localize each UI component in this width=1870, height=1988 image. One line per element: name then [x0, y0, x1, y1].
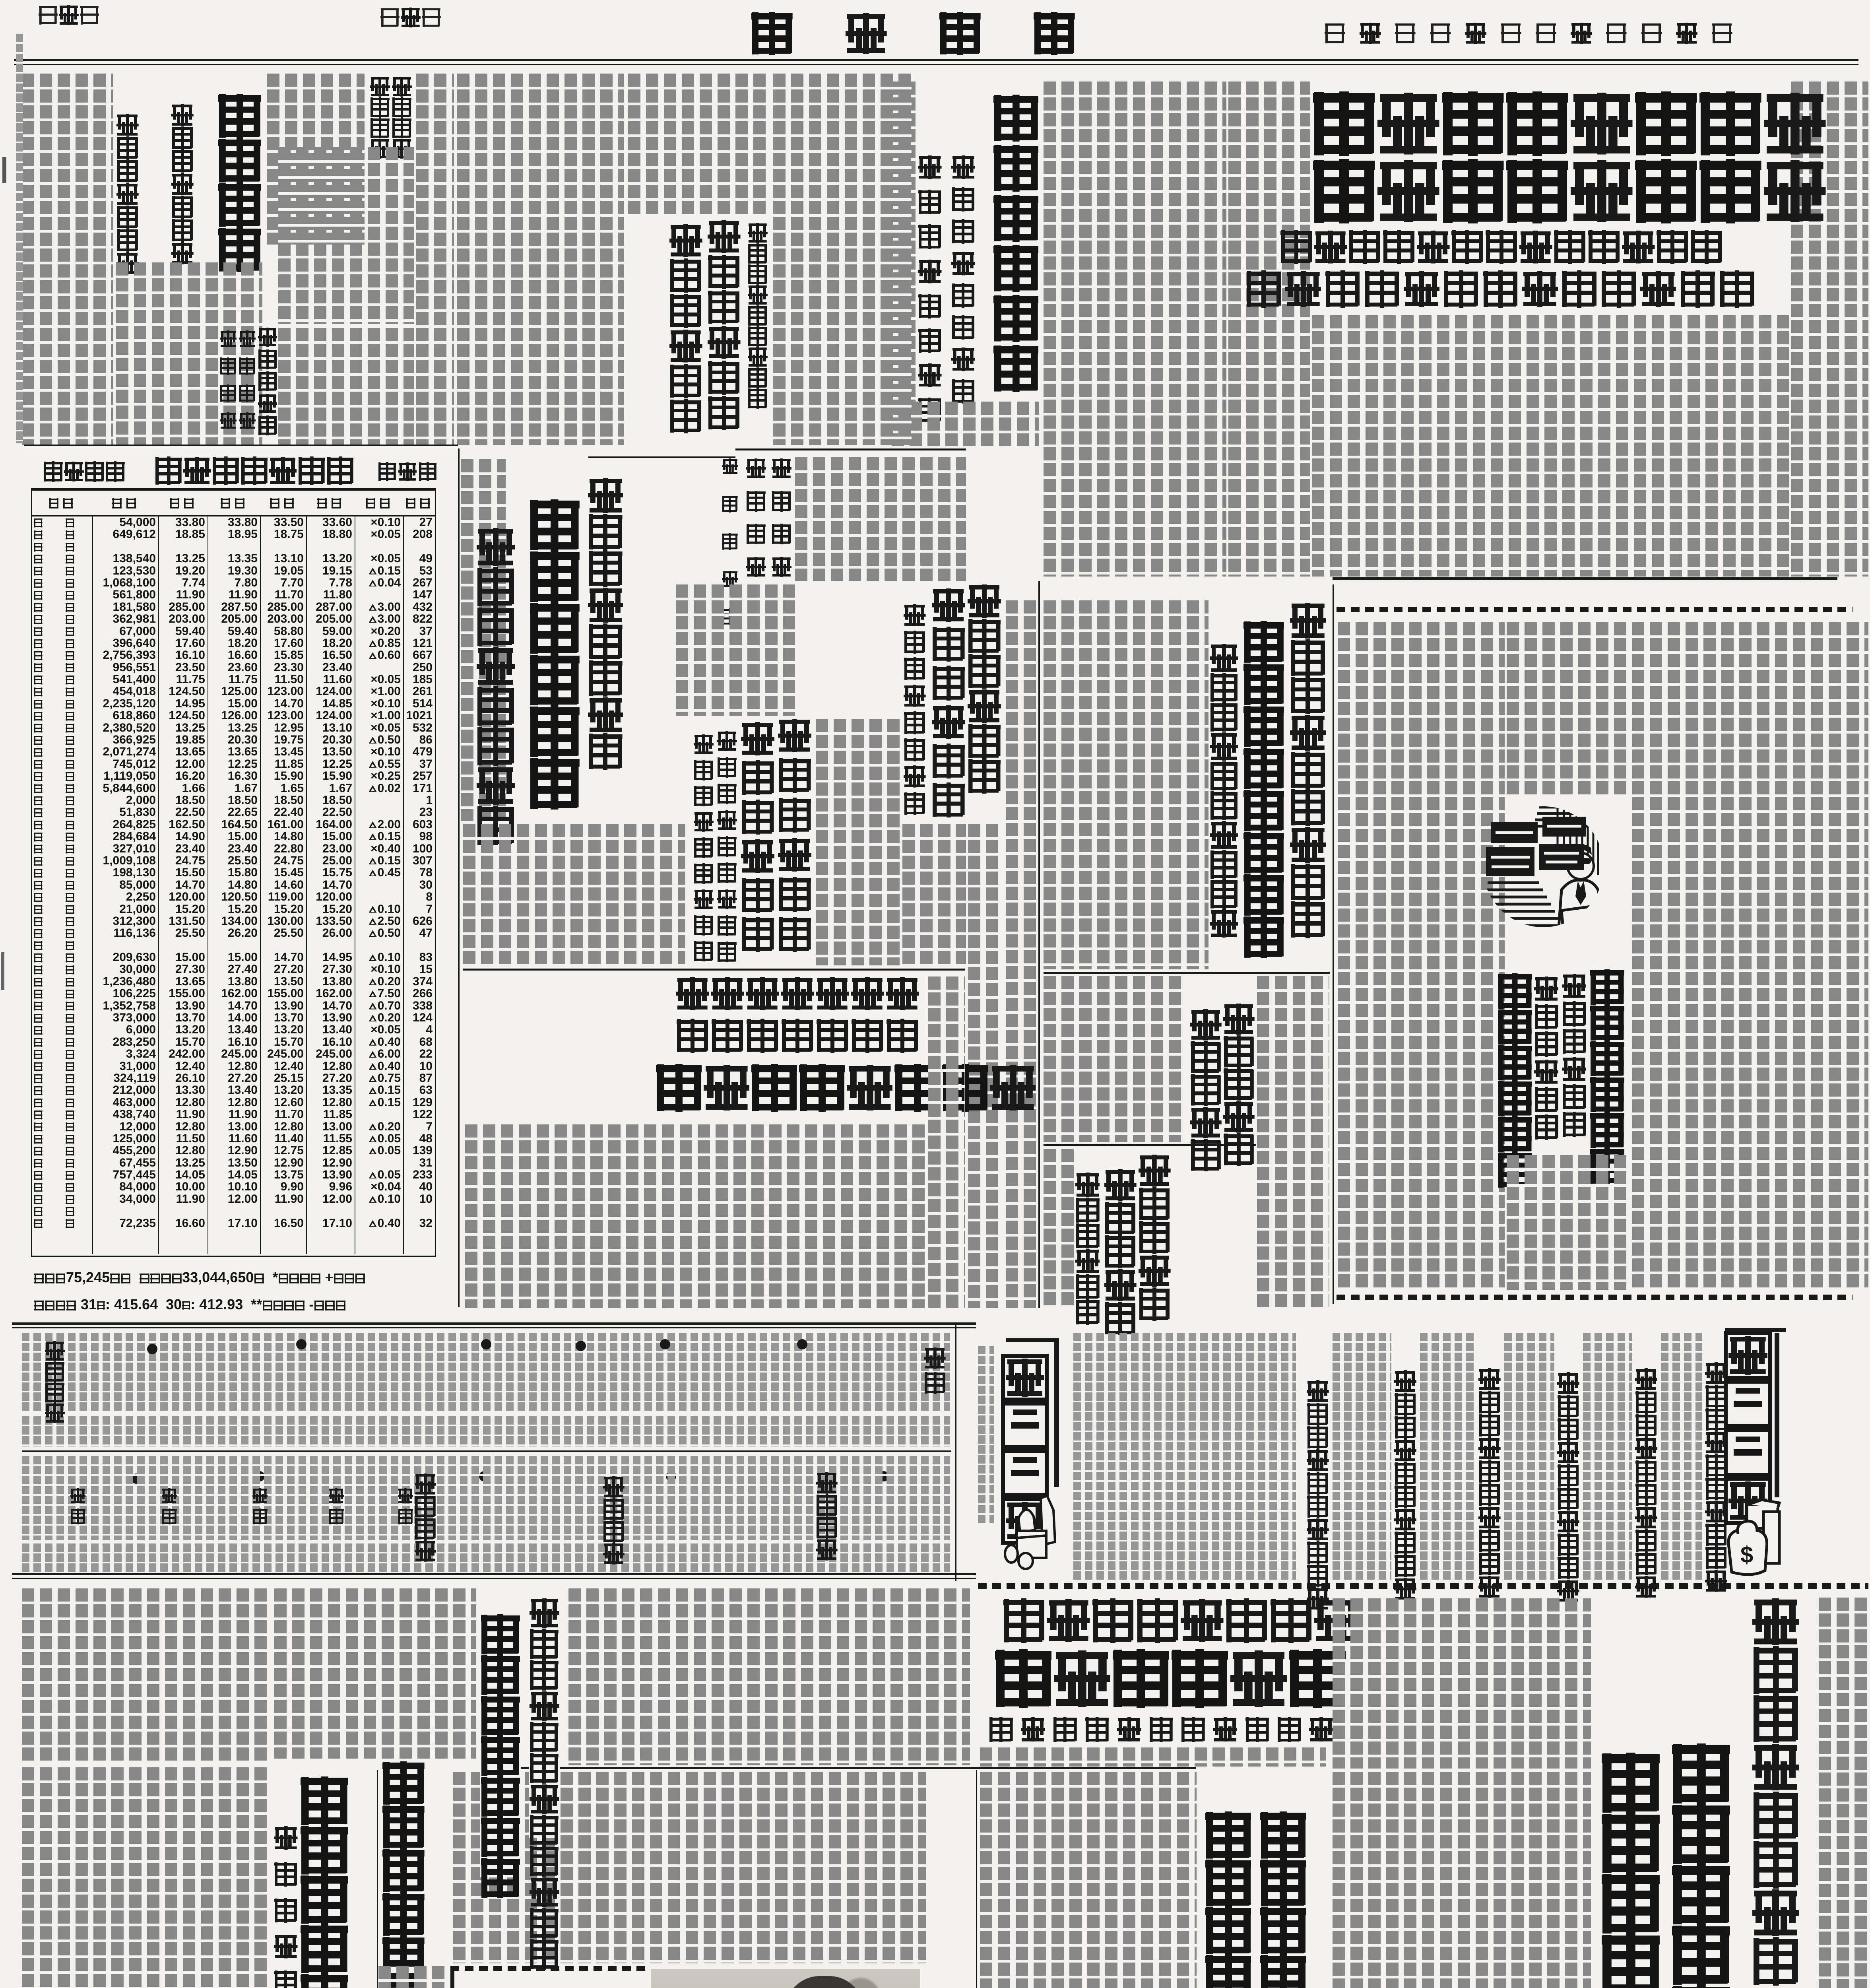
svg-text:$: $	[1740, 1542, 1753, 1568]
